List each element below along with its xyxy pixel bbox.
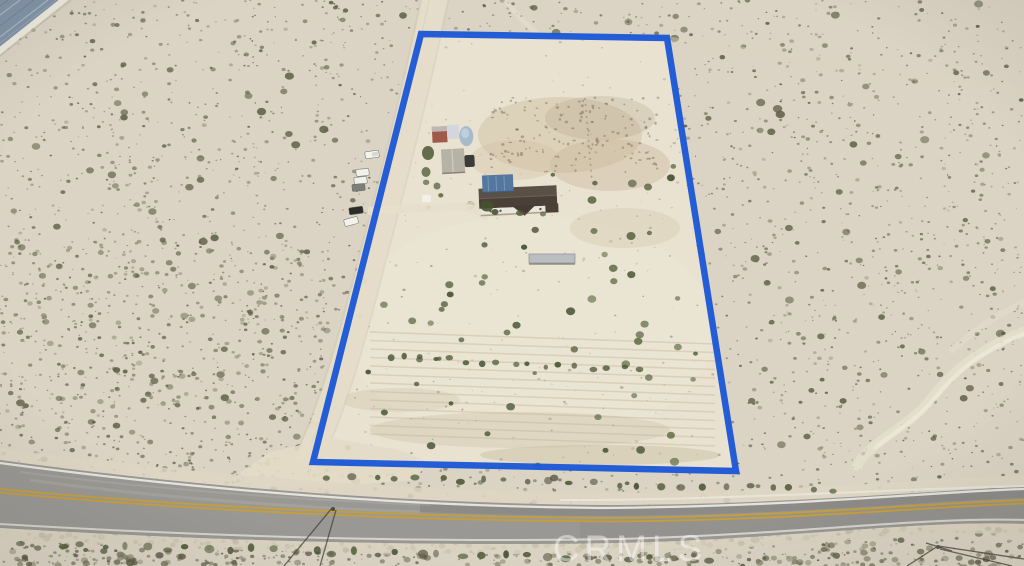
scene-svg: CRMLS <box>0 0 1024 566</box>
aerial-photo: CRMLS <box>0 0 1024 566</box>
crmls-watermark: CRMLS <box>553 528 708 566</box>
photo-vignette <box>0 0 1024 566</box>
